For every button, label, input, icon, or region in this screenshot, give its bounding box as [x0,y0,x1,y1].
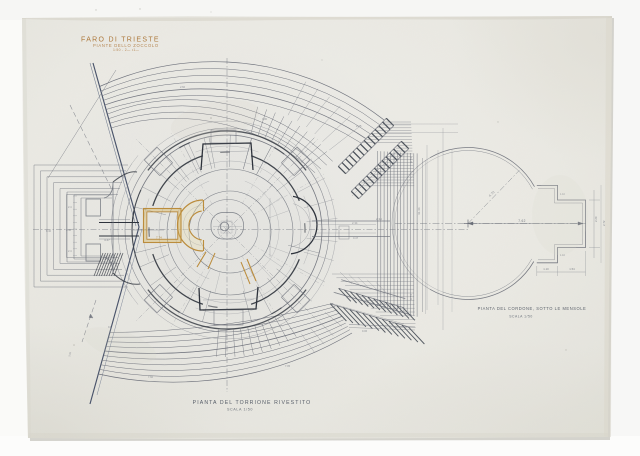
svg-text:2.34: 2.34 [352,221,358,225]
svg-text:SCALA 1/50: SCALA 1/50 [227,408,253,412]
svg-text:7.05: 7.05 [285,364,291,368]
svg-text:2.72: 2.72 [602,220,606,226]
svg-text:2.60: 2.60 [180,85,186,89]
svg-text:2.34: 2.34 [376,217,382,221]
svg-text:8.40: 8.40 [46,229,52,233]
svg-text:PIANTA DEL CORDONE, SOTTO: PIANTA DEL CORDONE, SOTTO LE MENSOLE [478,306,587,311]
svg-text:4.47: 4.47 [104,238,110,242]
svg-text:SCALA 1/50: SCALA 1/50 [509,315,532,319]
svg-text:0.47: 0.47 [353,236,359,240]
svg-text:2.4: 2.4 [68,249,72,253]
svg-text:1:50 - 2— •1—: 1:50 - 2— •1— [113,48,140,52]
svg-text:7.62: 7.62 [518,219,525,223]
svg-text:PIANTA DEL TORRIONE RIVESTIT: PIANTA DEL TORRIONE RIVESTITO [193,400,312,406]
svg-text:1.10: 1.10 [543,267,549,271]
svg-text:2.4: 2.4 [68,205,72,209]
svg-text:7.60: 7.60 [148,375,154,379]
svg-text:9.06: 9.06 [362,329,368,333]
svg-text:9.74: 9.74 [409,157,413,163]
svg-text:PIANTE DELLO ZOCCOLO: PIANTE DELLO ZOCCOLO [93,43,159,48]
svg-text:4.40: 4.40 [66,228,72,232]
svg-text:9.74: 9.74 [409,294,413,300]
svg-text:2.25: 2.25 [356,124,362,128]
svg-text:41.44: 41.44 [417,207,421,215]
svg-text:7.74: 7.74 [156,236,162,240]
svg-text:1.54: 1.54 [569,267,575,271]
svg-text:1.80: 1.80 [262,117,268,121]
svg-text:2.20: 2.20 [594,216,598,222]
